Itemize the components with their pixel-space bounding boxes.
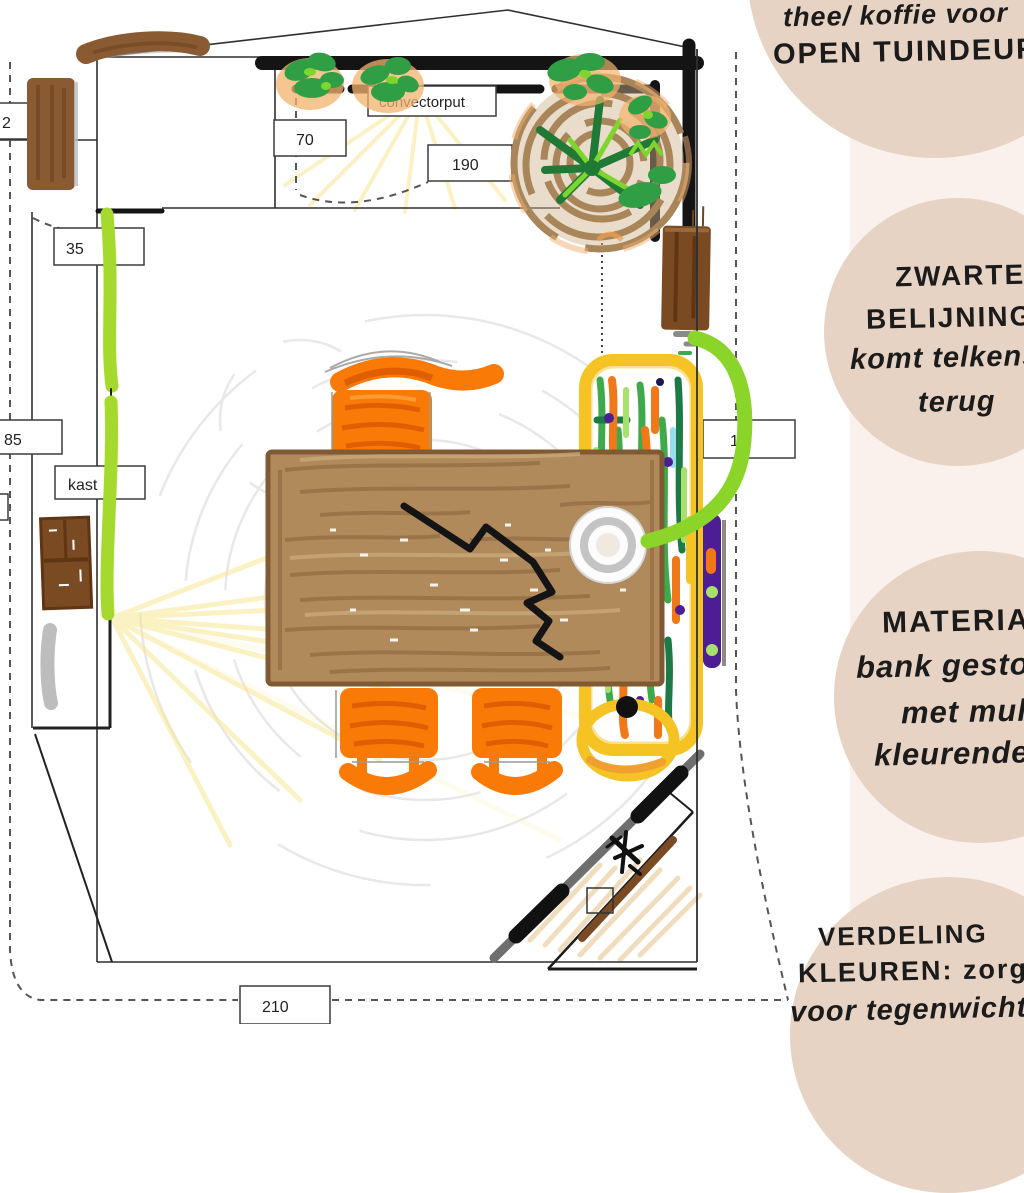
label-35: 35 — [54, 228, 144, 265]
plate — [570, 507, 646, 583]
note-line: bank gesto — [856, 646, 1024, 686]
label-kast: kast — [55, 466, 145, 499]
label-190: 190 — [428, 145, 512, 181]
note-line: thee/ koffie voor — [783, 0, 1009, 33]
label-70: 70 — [274, 120, 346, 156]
note-line: KLEUREN: zorg — [798, 954, 1024, 990]
note-line: VERDELING — [818, 918, 988, 953]
note-line: terug — [918, 385, 996, 420]
svg-text:210: 210 — [262, 999, 289, 1016]
note-line: BELIJNING — [866, 300, 1024, 335]
note-line: met mul — [901, 693, 1024, 732]
svg-text:85: 85 — [4, 432, 22, 449]
hatch-bottom-right — [530, 860, 700, 960]
chair-bottom-left — [336, 688, 438, 786]
purple-rail — [703, 514, 724, 668]
label-left-edge: 2 — [0, 103, 28, 139]
radiator — [47, 630, 51, 703]
label-85: 85 — [0, 420, 62, 454]
svg-text:2: 2 — [2, 115, 11, 132]
floorplan-sketch: 2 35 85 kast convectorput 70 190 — [0, 0, 1024, 1024]
note-line: kleurende — [874, 734, 1024, 773]
note-line: MATERIA — [882, 603, 1024, 640]
label-210: 210 — [240, 986, 330, 1024]
svg-text:35: 35 — [66, 241, 84, 258]
label-small-box — [0, 494, 8, 520]
kast-cabinet — [41, 517, 92, 609]
svg-text:190: 190 — [452, 157, 479, 174]
svg-text:70: 70 — [296, 132, 314, 149]
note-line: ZWARTE — [895, 259, 1024, 294]
note-line: komt telkens — [850, 340, 1024, 377]
svg-text:kast: kast — [68, 477, 98, 494]
green-accent-line — [107, 214, 112, 614]
note-line: OPEN TUINDEUR — [773, 33, 1024, 72]
sideboard — [27, 78, 76, 190]
moodboard-floorplan: { "annotations": { "bubble1": {"line1": … — [0, 0, 1024, 1024]
chair-bottom-right — [472, 688, 562, 786]
